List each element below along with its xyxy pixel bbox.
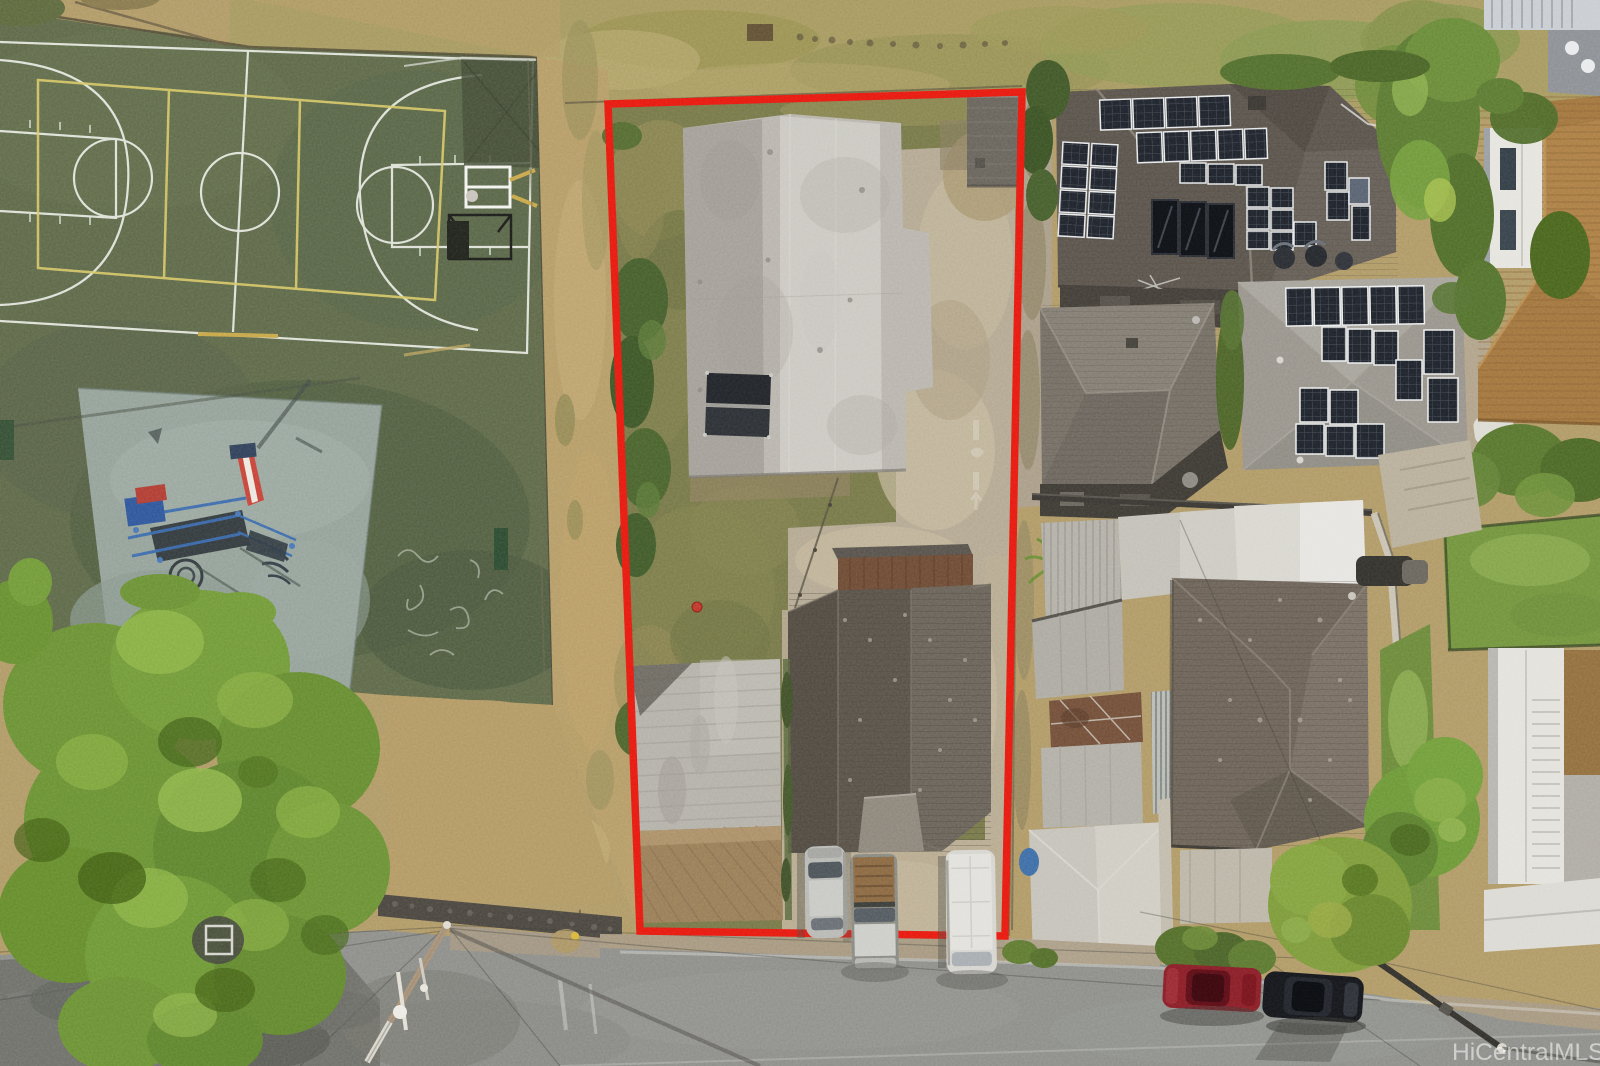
svg-text:HiCentralMLS: HiCentralMLS: [1452, 1039, 1600, 1066]
